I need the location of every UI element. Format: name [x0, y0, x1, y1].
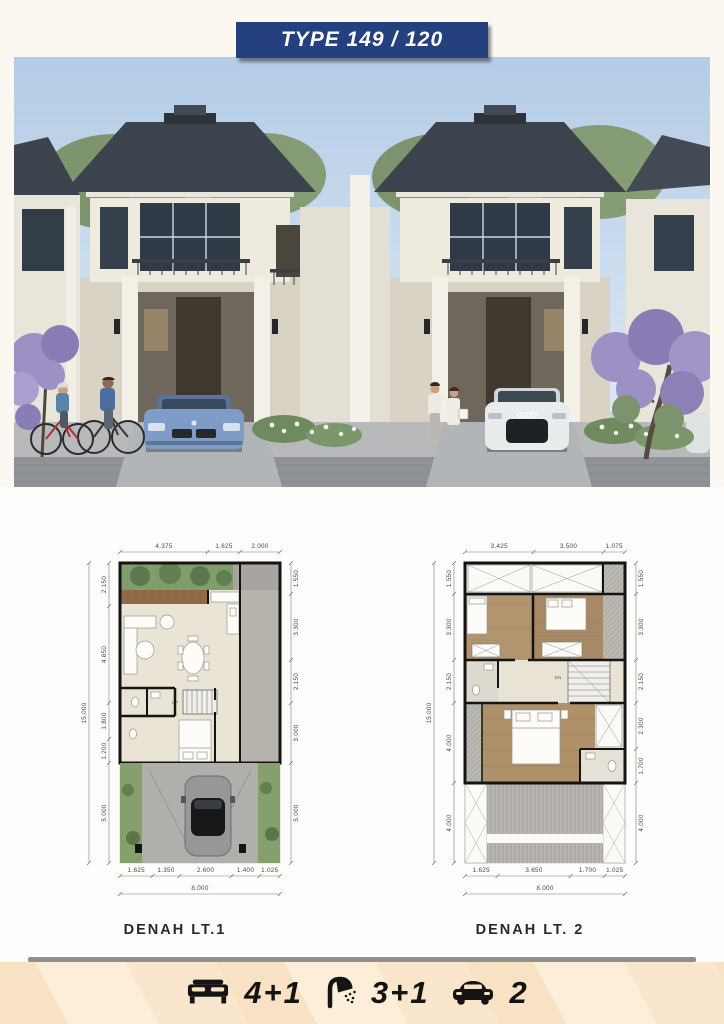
plan1-caption: DENAH LT.1: [90, 922, 260, 938]
wood-deck: [120, 590, 208, 604]
gate-post: [135, 844, 142, 853]
svg-text:1.400: 1.400: [237, 867, 254, 874]
svg-text:3.300: 3.300: [638, 618, 645, 635]
svg-text:2.150: 2.150: [101, 576, 108, 593]
stairs-label-dn: DN: [554, 675, 561, 680]
svg-text:4.375: 4.375: [155, 543, 172, 550]
svg-text:1.625: 1.625: [473, 867, 490, 874]
svg-text:3.000: 3.000: [293, 724, 300, 741]
type-banner-label: TYPE 149 / 120: [281, 28, 443, 52]
svg-text:2.600: 2.600: [197, 867, 214, 874]
svg-text:8.000: 8.000: [536, 885, 553, 892]
svg-text:4.850: 4.850: [101, 646, 108, 663]
wall-lamp: [424, 319, 430, 334]
wall-lamp: [272, 319, 278, 334]
svg-text:1.700: 1.700: [579, 867, 596, 874]
bed-icon: [187, 977, 229, 1007]
svg-text:3.425: 3.425: [491, 543, 508, 550]
svg-text:4.000: 4.000: [446, 734, 453, 751]
svg-text:2.300: 2.300: [638, 717, 645, 734]
shower-icon: [326, 975, 356, 1009]
svg-text:1.550: 1.550: [293, 570, 300, 587]
svg-text:1.200: 1.200: [101, 742, 108, 759]
hall-band: DN: [465, 660, 625, 703]
shopping-bag: [459, 409, 468, 419]
roof-void: [465, 563, 625, 594]
gate-post: [239, 844, 246, 853]
master-bedroom: [465, 703, 625, 783]
floorplan-level1: UP: [75, 538, 315, 908]
svg-text:1.025: 1.025: [261, 867, 278, 874]
svg-text:1.700: 1.700: [638, 757, 645, 774]
svg-text:1.800: 1.800: [101, 712, 108, 729]
svg-text:1.625: 1.625: [215, 543, 232, 550]
svg-text:1.550: 1.550: [446, 570, 453, 587]
car-icon: [452, 978, 494, 1006]
wall-lamp: [582, 319, 588, 334]
svg-text:2.150: 2.150: [638, 673, 645, 690]
plan2-caption: DENAH LT. 2: [445, 922, 615, 938]
bathroom-count: 3+1: [371, 977, 438, 1008]
svg-text:2.150: 2.150: [446, 673, 453, 690]
car-white-suv: [485, 388, 569, 452]
type-banner: TYPE 149 / 120: [236, 22, 488, 58]
party-wall: [300, 175, 390, 422]
car-top-view: [181, 776, 235, 856]
svg-text:3.500: 3.500: [560, 543, 577, 550]
car-blue-sedan: [144, 395, 244, 452]
svg-text:1.550: 1.550: [638, 570, 645, 587]
svg-text:4.000: 4.000: [638, 814, 645, 831]
brochure-page: TYPE 149 / 120: [0, 0, 724, 1024]
side-path: [240, 590, 280, 763]
svg-text:4.000: 4.000: [446, 814, 453, 831]
bedroom-count: 4+1: [244, 977, 311, 1008]
carport-count: 2: [509, 977, 536, 1008]
svg-text:5.000: 5.000: [293, 804, 300, 821]
svg-text:1.350: 1.350: [157, 867, 174, 874]
svg-text:5.000: 5.000: [101, 804, 108, 821]
house-right: [374, 105, 626, 422]
wall-lamp: [114, 319, 120, 334]
svg-text:3.300: 3.300: [293, 618, 300, 635]
svg-text:15.000: 15.000: [426, 702, 433, 723]
svg-text:3.300: 3.300: [446, 618, 453, 635]
spec-row: 4+1 3+1 2: [0, 970, 724, 1014]
house-render-photo: [14, 57, 710, 487]
svg-text:1.625: 1.625: [128, 867, 145, 874]
svg-text:1.075: 1.075: [606, 543, 623, 550]
svg-text:15.000: 15.000: [81, 702, 88, 723]
svg-text:8.000: 8.000: [191, 885, 208, 892]
garage-roof-below: [465, 783, 625, 863]
svg-text:2.150: 2.150: [293, 673, 300, 690]
floorplan-level2: DN: [420, 538, 660, 908]
svg-text:3.650: 3.650: [525, 867, 542, 874]
bedroom-bed: [179, 720, 211, 762]
svg-text:1.025: 1.025: [606, 867, 623, 874]
svg-text:2.000: 2.000: [251, 543, 268, 550]
